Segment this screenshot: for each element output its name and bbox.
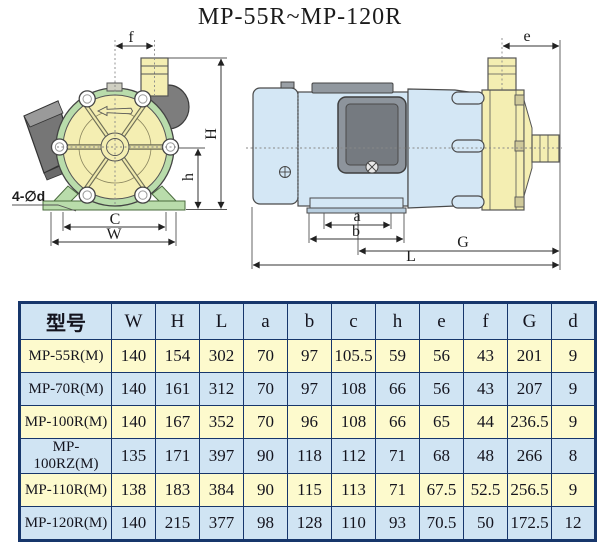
- value-cell: 256.5: [508, 474, 552, 507]
- value-cell: 44: [464, 406, 508, 439]
- pump-front-view: f H h C W 4-∅d: [12, 29, 227, 246]
- value-cell: 140: [112, 507, 156, 541]
- value-cell: 65: [420, 406, 464, 439]
- value-cell: 9: [552, 340, 596, 373]
- value-cell: 302: [200, 340, 244, 373]
- value-cell: 154: [156, 340, 200, 373]
- value-cell: 161: [156, 373, 200, 406]
- table-row: MP-55R(M)1401543027097105.55956432019: [20, 340, 596, 373]
- column-header-f: f: [464, 303, 508, 340]
- value-cell: 115: [288, 474, 332, 507]
- model-cell: MP-55R(M): [20, 340, 112, 373]
- value-cell: 70: [244, 340, 288, 373]
- dim-label-W: W: [106, 226, 122, 243]
- value-cell: 66: [376, 373, 420, 406]
- table-row: MP-100R(M)1401673527096108666544236.59: [20, 406, 596, 439]
- header-row: 型号 WHLabchefGd: [20, 303, 596, 340]
- value-cell: 266: [508, 439, 552, 474]
- value-cell: 140: [112, 406, 156, 439]
- dim-label-h: h: [180, 173, 197, 181]
- pump-head-side: [482, 58, 559, 210]
- column-header-a: a: [244, 303, 288, 340]
- table-row: MP-110R(M)138183384901151137167.552.5256…: [20, 474, 596, 507]
- suction-pipe: [532, 135, 559, 162]
- model-cell: MP-110R(M): [20, 474, 112, 507]
- value-cell: 384: [200, 474, 244, 507]
- column-header-e: e: [420, 303, 464, 340]
- value-cell: 140: [112, 340, 156, 373]
- value-cell: 215: [156, 507, 200, 541]
- drain-screw-icon: [280, 167, 291, 178]
- value-cell: 96: [288, 406, 332, 439]
- casing-top-tab: [107, 83, 122, 91]
- column-header-G: G: [508, 303, 552, 340]
- value-cell: 108: [332, 406, 376, 439]
- value-cell: 98: [244, 507, 288, 541]
- value-cell: 9: [552, 406, 596, 439]
- value-cell: 50: [464, 507, 508, 541]
- value-cell: 90: [244, 474, 288, 507]
- model-cell: MP-100RZ(M): [20, 439, 112, 474]
- value-cell: 113: [332, 474, 376, 507]
- column-header-d: d: [552, 303, 596, 340]
- value-cell: 12: [552, 507, 596, 541]
- value-cell: 171: [156, 439, 200, 474]
- value-cell: 183: [156, 474, 200, 507]
- value-cell: 167: [156, 406, 200, 439]
- value-cell: 9: [552, 474, 596, 507]
- value-cell: 105.5: [332, 340, 376, 373]
- value-cell: 71: [376, 474, 420, 507]
- value-cell: 397: [200, 439, 244, 474]
- pump-side-view: e a b G L: [246, 28, 562, 270]
- table-row: MP-120R(M)140215377981281109370.550172.5…: [20, 507, 596, 541]
- catalog-page: MP-55R~MP-120R: [0, 0, 600, 546]
- value-cell: 67.5: [420, 474, 464, 507]
- table-row: MP-100RZ(M)135171397901181127168482668: [20, 439, 596, 474]
- value-cell: 43: [464, 340, 508, 373]
- value-cell: 108: [332, 373, 376, 406]
- value-cell: 97: [288, 340, 332, 373]
- dim-label-H: H: [203, 128, 220, 140]
- lifting-lug: [281, 82, 294, 88]
- value-cell: 43: [464, 373, 508, 406]
- value-cell: 66: [376, 406, 420, 439]
- value-cell: 68: [420, 439, 464, 474]
- dim-label-f: f: [128, 29, 134, 46]
- model-cell: MP-100R(M): [20, 406, 112, 439]
- value-cell: 93: [376, 507, 420, 541]
- value-cell: 71: [376, 439, 420, 474]
- value-cell: 70: [244, 373, 288, 406]
- value-cell: 207: [508, 373, 552, 406]
- value-cell: 312: [200, 373, 244, 406]
- dim-label-e: e: [523, 28, 530, 45]
- value-cell: 97: [288, 373, 332, 406]
- column-header-b: b: [288, 303, 332, 340]
- value-cell: 352: [200, 406, 244, 439]
- value-cell: 135: [112, 439, 156, 474]
- value-cell: 52.5: [464, 474, 508, 507]
- dim-label-L: L: [406, 248, 416, 265]
- value-cell: 377: [200, 507, 244, 541]
- value-cell: 90: [244, 439, 288, 474]
- model-cell: MP-120R(M): [20, 507, 112, 541]
- value-cell: 236.5: [508, 406, 552, 439]
- value-cell: 70.5: [420, 507, 464, 541]
- model-cell: MP-70R(M): [20, 373, 112, 406]
- value-cell: 128: [288, 507, 332, 541]
- value-cell: 110: [332, 507, 376, 541]
- dimension-table: 型号 WHLabchefGd MP-55R(M)1401543027097105…: [18, 301, 597, 542]
- value-cell: 138: [112, 474, 156, 507]
- value-cell: 56: [420, 340, 464, 373]
- dim-label-G: G: [457, 234, 469, 251]
- column-header-L: L: [200, 303, 244, 340]
- column-header-model: 型号: [20, 303, 112, 340]
- column-header-H: H: [156, 303, 200, 340]
- value-cell: 56: [420, 373, 464, 406]
- terminal-cover: [312, 83, 393, 93]
- value-cell: 201: [508, 340, 552, 373]
- column-header-c: c: [332, 303, 376, 340]
- dimension-table-body: MP-55R(M)1401543027097105.55956432019MP-…: [20, 340, 596, 541]
- table-row: MP-70R(M)14016131270971086656432079: [20, 373, 596, 406]
- dim-label-mounting-holes: 4-∅d: [12, 188, 45, 204]
- value-cell: 48: [464, 439, 508, 474]
- value-cell: 140: [112, 373, 156, 406]
- nameplate: [338, 97, 406, 173]
- value-cell: 112: [332, 439, 376, 474]
- value-cell: 70: [244, 406, 288, 439]
- column-header-W: W: [112, 303, 156, 340]
- value-cell: 172.5: [508, 507, 552, 541]
- column-header-h: h: [376, 303, 420, 340]
- value-cell: 59: [376, 340, 420, 373]
- dim-label-b: b: [352, 223, 360, 240]
- value-cell: 8: [552, 439, 596, 474]
- value-cell: 118: [288, 439, 332, 474]
- value-cell: 9: [552, 373, 596, 406]
- pump-technical-drawing: f H h C W 4-∅d: [0, 0, 600, 300]
- dimension-table-header: 型号 WHLabchefGd: [20, 303, 596, 340]
- motor-body: [253, 82, 483, 213]
